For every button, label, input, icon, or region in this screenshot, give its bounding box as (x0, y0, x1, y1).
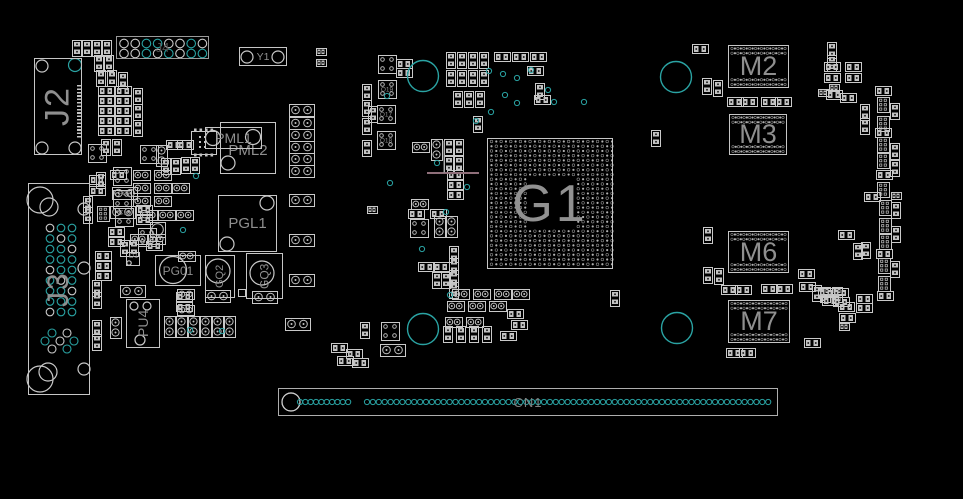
smd-r2h[interactable] (727, 349, 743, 358)
smd-c2v[interactable] (432, 140, 443, 161)
smd-r2h[interactable] (825, 74, 841, 83)
smd-c2v[interactable] (213, 317, 224, 338)
smd-r2v[interactable] (361, 323, 370, 339)
smd-c2hs[interactable] (495, 290, 512, 300)
smd-r2v[interactable] (433, 273, 442, 289)
smd-q4[interactable]: Q18 (378, 132, 396, 150)
smd-r2v[interactable] (363, 85, 372, 101)
via (434, 160, 439, 165)
smd-c2hs[interactable] (134, 184, 151, 194)
via (514, 75, 519, 80)
smd-r2v[interactable] (469, 53, 478, 69)
smd-r2h[interactable] (332, 344, 348, 353)
smd-c2v[interactable] (177, 317, 188, 338)
smd-r2h[interactable] (419, 263, 435, 272)
smd-r2h[interactable] (96, 272, 112, 281)
smd-sq[interactable] (239, 290, 246, 297)
j3-refdes: J3 (29, 184, 89, 394)
smd-r2s[interactable] (892, 193, 902, 200)
smd-r2h[interactable] (116, 117, 132, 126)
smd-r2h[interactable] (513, 53, 529, 62)
y1-refdes: Y1 (240, 48, 286, 65)
smd-r2v[interactable] (470, 327, 479, 343)
smd-r2h[interactable] (512, 321, 528, 330)
inductor-pg01[interactable]: PG01 (155, 255, 201, 286)
smd-r2h[interactable] (508, 310, 524, 319)
ic-pu4[interactable]: PU4 (126, 299, 160, 348)
smd-r2v[interactable] (73, 41, 82, 57)
smd-c2hs[interactable] (159, 211, 176, 221)
smd-c2hs[interactable] (155, 184, 172, 194)
smd-c2h[interactable] (286, 319, 311, 331)
smd-r2h[interactable] (799, 270, 815, 279)
smd-c2hs[interactable] (177, 211, 194, 221)
connector-cn1[interactable]: CN1 (278, 388, 778, 416)
ic-pgl1[interactable]: PGL1 (218, 195, 277, 252)
smd-r2s[interactable] (317, 60, 327, 67)
via (488, 109, 493, 114)
smd-r2h[interactable] (857, 295, 873, 304)
smd-c2v[interactable] (225, 317, 236, 338)
smd-r2h[interactable] (762, 285, 778, 294)
memory-m2[interactable]: M2 (728, 45, 789, 88)
smd-r2h[interactable] (448, 191, 464, 200)
smd-c2v[interactable] (165, 317, 176, 338)
smd-r2s[interactable] (368, 207, 378, 214)
memory-m7[interactable]: M7 (728, 300, 790, 343)
smd-c2hs[interactable] (413, 143, 430, 153)
cn1-refdes: CN1 (279, 389, 777, 415)
smd-r2v[interactable] (891, 161, 900, 177)
via (464, 184, 469, 189)
smd-r2h[interactable] (740, 349, 756, 358)
smd-c2hs[interactable] (513, 290, 530, 300)
smd-r2v[interactable] (134, 89, 143, 105)
smd-r2v[interactable] (95, 56, 104, 72)
smd-r2v[interactable] (113, 140, 122, 156)
smd-c2h[interactable] (290, 195, 315, 207)
smd-r2h[interactable] (409, 210, 425, 219)
pgl1-refdes: PGL1 (219, 196, 276, 251)
smd-p6v[interactable] (880, 235, 892, 250)
smd-p6v[interactable] (880, 201, 892, 216)
smd-r2h[interactable] (777, 285, 793, 294)
smd-r2v[interactable] (97, 71, 106, 87)
smd-r2v[interactable] (93, 41, 102, 57)
smd-r2h[interactable] (116, 87, 132, 96)
smd-r2v[interactable] (892, 227, 901, 243)
smd-r2h[interactable] (877, 250, 893, 259)
smd-r2v[interactable] (191, 158, 200, 174)
smd-r2v[interactable] (83, 41, 92, 57)
smd-p6v[interactable] (878, 138, 890, 153)
smd-r2v[interactable] (891, 144, 900, 160)
smd-q4[interactable] (379, 56, 397, 74)
smd-r2v[interactable] (704, 268, 713, 284)
smd-r2v[interactable] (480, 53, 489, 69)
via (384, 93, 389, 98)
mounting-hole (662, 313, 693, 344)
smd-r2h[interactable] (111, 171, 127, 180)
smd-c2v[interactable] (447, 217, 458, 238)
via (551, 99, 556, 104)
smd-r2h[interactable] (397, 69, 413, 78)
smd-c2h[interactable] (290, 166, 315, 178)
smd-r2v[interactable] (447, 53, 456, 69)
smd-p6v[interactable] (878, 154, 890, 169)
smd-c2hs[interactable] (155, 197, 172, 207)
smd-c2hs[interactable] (134, 171, 151, 181)
smd-r2v[interactable] (182, 158, 191, 174)
smd-p6v[interactable] (879, 277, 891, 292)
smd-r2h[interactable] (109, 228, 125, 237)
via (387, 180, 392, 185)
smd-r2h[interactable] (116, 97, 132, 106)
smd-r2h[interactable] (90, 187, 106, 196)
diode-d1[interactable]: D1 (126, 252, 140, 266)
smd-r2v[interactable] (103, 41, 112, 57)
smd-r2h[interactable] (448, 171, 464, 180)
smd-r2v[interactable] (458, 53, 467, 69)
smd-q4[interactable]: Q19 (379, 81, 397, 99)
smd-r2v[interactable] (105, 56, 114, 72)
smd-r2v[interactable] (469, 71, 478, 87)
smd-r2v[interactable] (458, 71, 467, 87)
j2-refdes: J2 (35, 59, 81, 154)
crystal-y1[interactable]: Y1 (239, 47, 287, 66)
board-canvas: PC8PC13Q19Q17Q18 (0, 0, 963, 499)
smd-r2v[interactable] (134, 105, 143, 121)
smd-p6v[interactable] (878, 98, 890, 113)
pcb-assembly-view: PC8PC13Q19Q17Q18 J2 J4 Y1 J3 PML2 PML1 P… (0, 0, 963, 499)
smd-r2h[interactable] (434, 263, 450, 272)
smd-c2h[interactable] (121, 286, 146, 298)
smd-r2v[interactable] (476, 92, 485, 108)
smd-r2v[interactable] (134, 121, 143, 137)
m3-refdes: M3 (730, 115, 786, 154)
via (500, 71, 505, 76)
smd-c2h[interactable] (290, 130, 315, 142)
smd-c2hs[interactable] (490, 302, 507, 312)
smd-q4[interactable]: Q17 (378, 106, 396, 124)
inductor-gq3[interactable]: GQ3 (246, 253, 283, 299)
smd-r2h[interactable] (846, 63, 862, 72)
smd-q4[interactable] (411, 220, 429, 238)
smd-r2v[interactable] (715, 269, 724, 285)
connector-j3[interactable]: J3 (28, 183, 90, 395)
smd-r2s[interactable] (317, 49, 327, 56)
smd-r2h[interactable] (805, 339, 821, 348)
smd-r2v[interactable] (447, 71, 456, 87)
smd-r2h[interactable] (876, 87, 892, 96)
smd-r2v[interactable] (892, 203, 901, 219)
smd-r2v[interactable] (455, 140, 464, 156)
inductor-gq2[interactable]: GQ2 (205, 255, 235, 298)
connector-j4[interactable]: J4 (116, 36, 209, 59)
smd-c2h[interactable] (290, 275, 315, 287)
j4-refdes: J4 (117, 37, 208, 58)
memory-m6[interactable]: M6 (728, 231, 789, 273)
gq3-refdes: GQ3 (247, 254, 282, 298)
smd-r2h[interactable] (96, 252, 112, 261)
smd-r2v[interactable] (363, 119, 372, 135)
smd-p6v[interactable] (878, 117, 890, 132)
smd-c2h[interactable] (290, 142, 315, 154)
smd-r2v[interactable] (445, 140, 454, 156)
smd-c2hs[interactable] (173, 184, 190, 194)
smd-r2v[interactable] (108, 71, 117, 87)
smd-r2v[interactable] (611, 291, 620, 307)
bga-g1[interactable]: G1 (487, 138, 613, 269)
pg01-refdes: PG01 (156, 256, 200, 285)
smd-q4[interactable] (141, 146, 159, 164)
connector-j2[interactable]: J2 (34, 58, 82, 155)
smd-r2h[interactable] (846, 74, 862, 83)
smd-r2v[interactable] (465, 92, 474, 108)
smd-q4[interactable] (89, 145, 107, 163)
smd-p6v[interactable] (98, 207, 110, 222)
smd-r2h[interactable] (353, 359, 369, 368)
smd-r2h[interactable] (347, 350, 363, 359)
smd-r2h[interactable] (116, 107, 132, 116)
smd-c2v[interactable] (111, 318, 122, 339)
smd-c2h[interactable] (290, 235, 315, 247)
smd-r2v[interactable] (483, 327, 492, 343)
gq2-refdes: GQ2 (206, 256, 234, 297)
smd-r2h[interactable] (857, 304, 873, 313)
smd-r2h[interactable] (800, 283, 816, 292)
smd-p6v[interactable] (879, 259, 891, 274)
via (514, 100, 519, 105)
smd-r2h[interactable] (448, 181, 464, 190)
smd-r2v[interactable] (891, 104, 900, 120)
smd-p6v[interactable] (880, 219, 892, 234)
smd-r2h[interactable] (99, 87, 115, 96)
smd-p6v[interactable] (878, 183, 890, 198)
smd-r2h[interactable] (840, 314, 856, 323)
smd-r2h[interactable] (96, 262, 112, 271)
smd-r2s[interactable] (840, 324, 850, 331)
smd-r2v[interactable] (457, 327, 466, 343)
smd-r2v[interactable] (454, 92, 463, 108)
smd-r2v[interactable] (828, 43, 837, 59)
smd-r2v[interactable] (172, 159, 181, 175)
ic-pml1[interactable]: PML1 (205, 127, 262, 149)
m6-refdes: M6 (729, 232, 788, 272)
smd-c2h[interactable] (290, 118, 315, 130)
smd-r2v[interactable] (703, 79, 712, 95)
smd-c2hs[interactable] (412, 200, 429, 210)
via (545, 87, 550, 92)
smd-q4[interactable] (382, 323, 400, 341)
mounting-hole (661, 62, 692, 93)
part-label: Q17 (380, 111, 393, 118)
smd-r2h[interactable] (693, 45, 709, 54)
smd-r2v[interactable] (652, 131, 661, 147)
d1-refdes: D1 (127, 253, 139, 265)
smd-r2h[interactable] (99, 127, 115, 136)
smd-c2hs[interactable] (474, 290, 491, 300)
smd-r2v[interactable] (714, 81, 723, 97)
smd-c2h[interactable] (290, 154, 315, 166)
m7-refdes: M7 (729, 301, 789, 342)
smd-r2h[interactable] (495, 53, 511, 62)
mounting-hole (408, 314, 439, 345)
part-label: Q18 (380, 137, 393, 144)
via (581, 99, 586, 104)
smd-r2h[interactable] (878, 292, 894, 301)
via (419, 246, 424, 251)
smd-r2h[interactable] (501, 332, 517, 341)
smd-r2h[interactable] (839, 231, 855, 240)
via (193, 173, 198, 178)
smd-r2h[interactable] (116, 127, 132, 136)
memory-m3[interactable]: M3 (729, 114, 787, 155)
smd-r2v[interactable] (363, 141, 372, 157)
smd-c2hs[interactable] (448, 302, 465, 312)
smd-r2v[interactable] (704, 228, 713, 244)
smd-r2h[interactable] (99, 107, 115, 116)
m2-refdes: M2 (729, 46, 788, 87)
smd-r2v[interactable] (93, 293, 102, 309)
smd-r2h[interactable] (99, 97, 115, 106)
smd-c2v[interactable] (435, 217, 446, 238)
smd-r2h[interactable] (531, 53, 547, 62)
via (180, 227, 185, 232)
via (502, 92, 507, 97)
smd-c2hs[interactable] (469, 302, 486, 312)
pu4-refdes: PU4 (127, 300, 159, 347)
smd-r2h[interactable] (338, 357, 354, 366)
g1-refdes: G1 (488, 139, 612, 268)
pml1-refdes: PML1 (206, 128, 261, 148)
smd-r2h[interactable] (99, 117, 115, 126)
smd-r2v[interactable] (444, 327, 453, 343)
smd-c2v[interactable] (201, 317, 212, 338)
smd-c2h[interactable] (290, 105, 315, 117)
part-label: Q19 (381, 86, 394, 93)
smd-r2v[interactable] (891, 262, 900, 278)
smd-c2h[interactable] (381, 345, 406, 357)
